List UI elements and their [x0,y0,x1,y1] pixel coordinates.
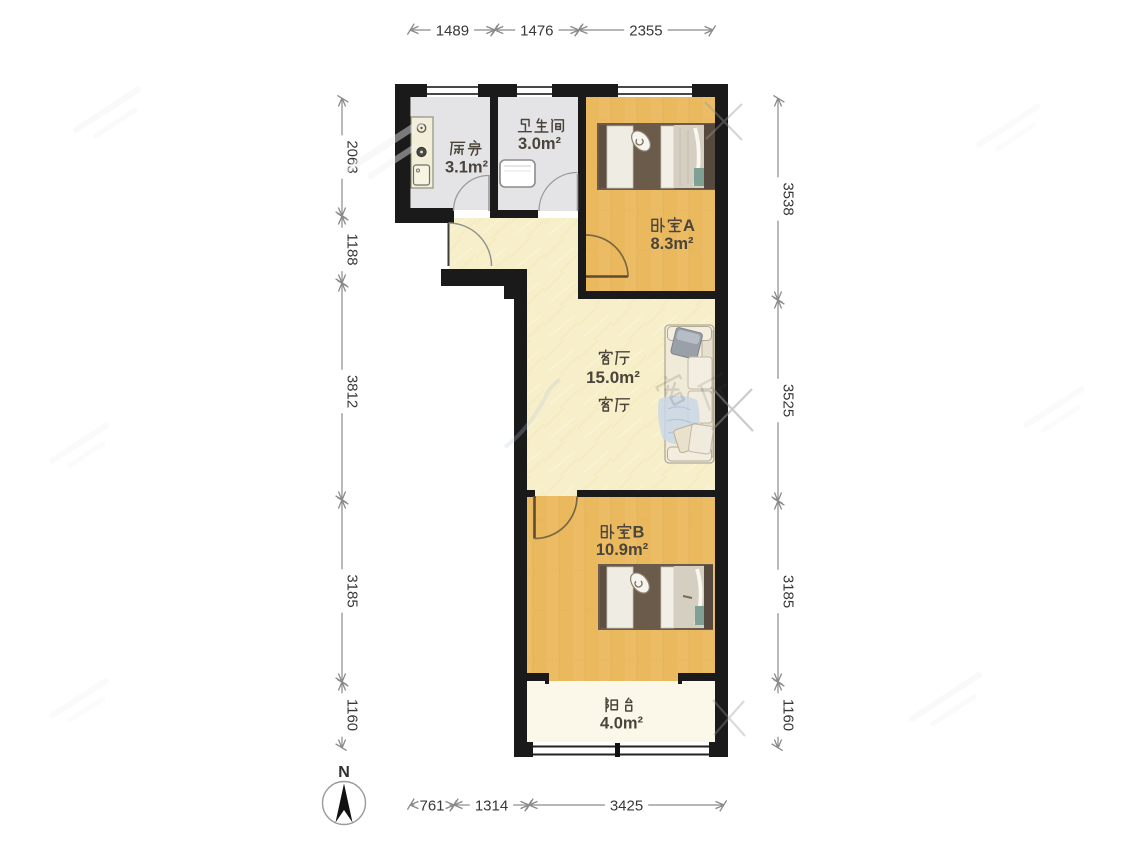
svg-text:3185: 3185 [343,574,360,607]
svg-text:10.9m²: 10.9m² [596,541,649,559]
svg-text:3.0m²: 3.0m² [518,135,562,153]
svg-text:3538: 3538 [779,182,796,215]
svg-text:B: B [633,524,645,542]
svg-text:3.1m²: 3.1m² [445,159,489,177]
svg-text:1160: 1160 [343,699,360,731]
svg-text:1314: 1314 [475,797,508,814]
svg-text:8.3m²: 8.3m² [650,235,694,253]
svg-text:3812: 3812 [343,375,360,408]
svg-text:2355: 2355 [629,22,662,39]
svg-text:1489: 1489 [436,22,469,39]
svg-text:1188: 1188 [343,233,360,265]
svg-text:1160: 1160 [779,699,796,731]
svg-text:1476: 1476 [520,22,553,39]
svg-text:3185: 3185 [779,575,796,608]
svg-text:A: A [683,217,695,235]
svg-text:3425: 3425 [610,797,643,814]
svg-text:3525: 3525 [779,384,796,417]
svg-text:761: 761 [419,797,444,814]
svg-text:15.0m²: 15.0m² [586,368,640,387]
svg-text:4.0m²: 4.0m² [600,715,644,733]
svg-text:N: N [338,764,350,781]
